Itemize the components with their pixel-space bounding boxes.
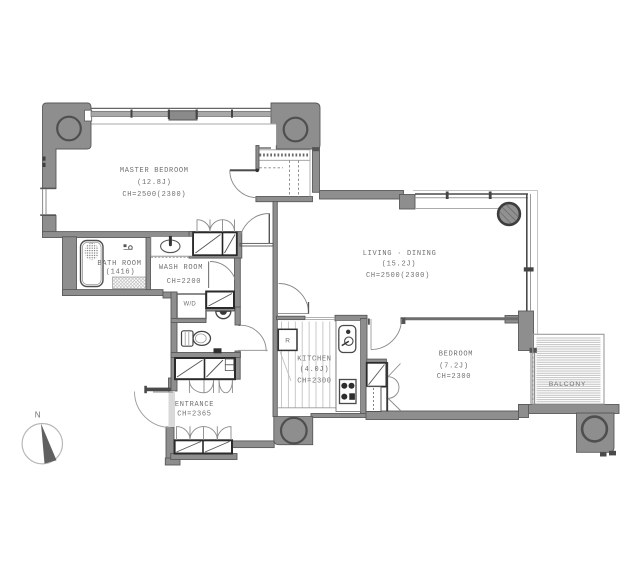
svg-text:MASTER BEDROOM: MASTER BEDROOM bbox=[120, 167, 189, 175]
svg-text:(12.8J): (12.8J) bbox=[137, 179, 171, 187]
svg-text:BATH ROOM: BATH ROOM bbox=[97, 260, 141, 268]
svg-text:WASH ROOM: WASH ROOM bbox=[159, 264, 203, 272]
svg-text:(1416): (1416) bbox=[106, 269, 136, 277]
svg-text:CH=2500(2300): CH=2500(2300) bbox=[122, 191, 186, 199]
svg-text:(4.0J): (4.0J) bbox=[300, 366, 330, 374]
svg-text:BALCONY: BALCONY bbox=[549, 381, 586, 388]
svg-text:CH=2365: CH=2365 bbox=[177, 411, 211, 419]
svg-text:CH=2500(2300): CH=2500(2300) bbox=[366, 272, 430, 280]
svg-text:W/D: W/D bbox=[184, 301, 197, 307]
svg-text:CH=2300: CH=2300 bbox=[437, 373, 471, 381]
svg-text:(15.2J): (15.2J) bbox=[382, 261, 416, 269]
svg-text:N: N bbox=[35, 411, 41, 420]
svg-text:KITCHEN: KITCHEN bbox=[297, 356, 331, 364]
svg-text:R: R bbox=[285, 338, 290, 345]
svg-text:ENTRANCE: ENTRANCE bbox=[175, 401, 214, 409]
svg-text:BEDROOM: BEDROOM bbox=[439, 350, 473, 358]
svg-text:LIVING · DINING: LIVING · DINING bbox=[363, 250, 437, 258]
svg-text:CH=2200: CH=2200 bbox=[167, 278, 201, 286]
svg-text:CH=2300: CH=2300 bbox=[297, 378, 331, 386]
svg-text:(7.2J): (7.2J) bbox=[439, 362, 469, 370]
